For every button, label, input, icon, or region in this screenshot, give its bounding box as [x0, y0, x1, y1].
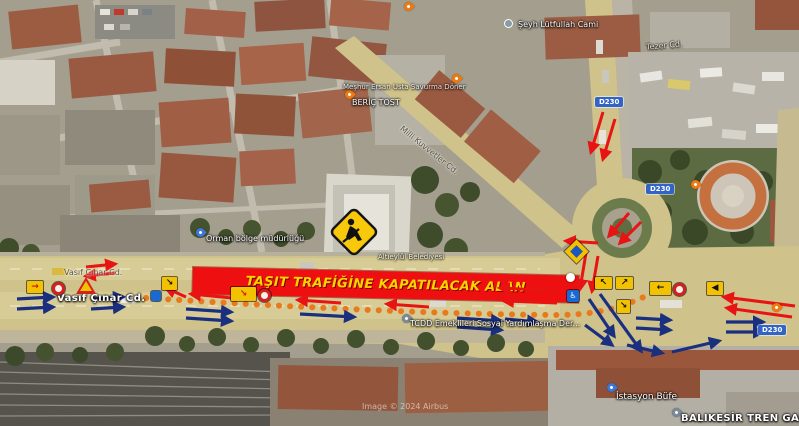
annotated-satellite-map[interactable]: TAŞIT TRAFİĞİNE KAPATILACAK ALAN → ↘ ↘ ♿…: [0, 0, 799, 426]
label-street-vasif-lower: Vasıf Çınar Cd.: [57, 293, 146, 304]
label-poi-bufe: İstasyon Büfe: [616, 392, 677, 402]
no-entry-sign-2: [258, 289, 271, 302]
horn-warning-sign: ◀: [707, 282, 723, 295]
info-mini-sign: [151, 291, 161, 301]
road-shield-d230: D230: [646, 184, 674, 194]
direction-sign-se: ↘: [617, 300, 630, 313]
traffic-annotation-layer: [0, 0, 799, 426]
direction-sign-ne: ↗: [616, 277, 633, 289]
label-street-vasif-upper: Vasıf Çınar Cd.: [64, 268, 122, 277]
mosque-poi-icon: [505, 20, 512, 27]
label-poi-doner: Meşhur Ersan Usta Savurma Döner: [343, 83, 466, 91]
imagery-watermark: Image © 2024 Airbus: [362, 402, 448, 411]
road-shield-d230: D230: [758, 325, 786, 335]
label-mosque: Şeyh Lütfullah Cami: [518, 20, 598, 29]
warning-triangle-sign: [76, 277, 96, 294]
red-direction-arrows: [86, 112, 795, 317]
roadworks-sign-icon: [330, 208, 378, 256]
label-poi-tren-gar: BALIKESİR TREN GAR: [681, 413, 799, 424]
no-entry-sign: [52, 282, 65, 295]
mandatory-direction-sign: →: [27, 281, 43, 293]
lane-shift-sign: ↘: [162, 277, 177, 290]
direction-sign-left: ←: [650, 282, 671, 295]
direction-sign-nw: ↖: [595, 277, 612, 289]
label-poi-tost: BERİÇ TOST: [352, 98, 400, 107]
label-poi-belediye: Altıeylül Belediyesi: [378, 253, 444, 261]
label-poi-orman: Orman bölge müdürlüğü: [206, 234, 304, 243]
no-entry-sign-3: [673, 283, 686, 296]
road-shield-d230: D230: [595, 97, 623, 107]
label-poi-tcdd: TCDD Emeklileri Sosyal Yardımlaşma Der..…: [410, 319, 580, 328]
closure-endpoint-dot: [566, 273, 575, 282]
accessibility-sign: ♿: [567, 290, 579, 302]
lane-closure-sign: ↘: [231, 287, 256, 301]
